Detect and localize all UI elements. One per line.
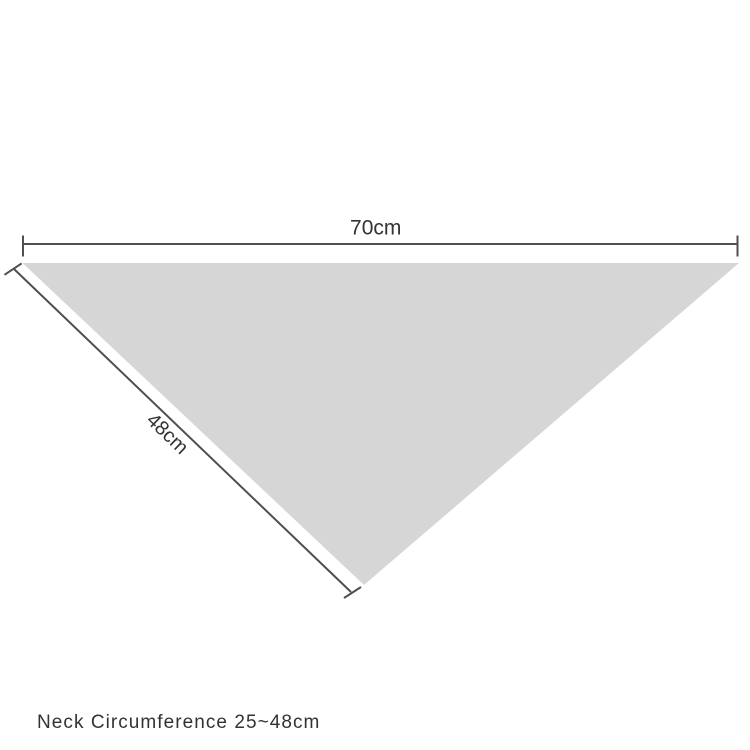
svg-text:70cm: 70cm: [350, 217, 401, 240]
svg-text:Neck Circumference 25~48cm: Neck Circumference 25~48cm: [37, 712, 320, 733]
